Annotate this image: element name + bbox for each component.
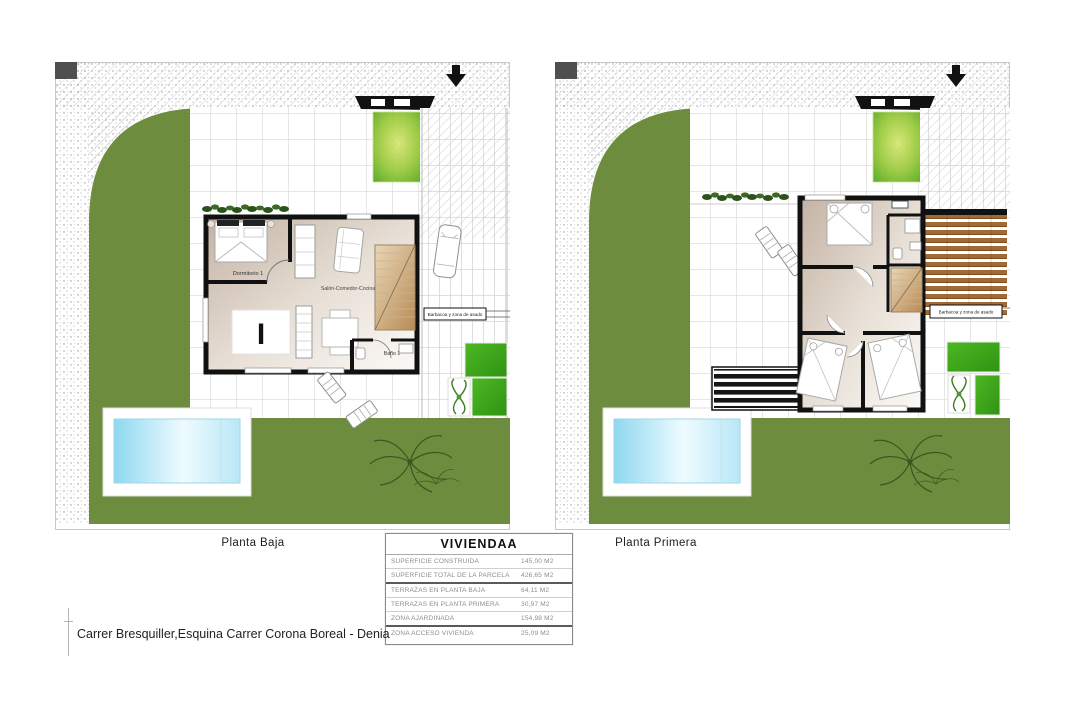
plan-title-planta-baja: Planta Baja	[183, 537, 323, 553]
bedroom-label: Dormitorio 1	[233, 271, 263, 277]
row-label: SUPERFICIE CONSTRUIDA	[391, 558, 479, 565]
grass-patch	[975, 375, 1000, 415]
house-first-floor	[796, 195, 923, 411]
house-ground-floor: I Dormitorio 1 Salón-Comedor-Cocina Baño…	[203, 214, 417, 373]
bbq-label: Barbacoa y zona de asado	[428, 312, 483, 317]
row-label: TERRAZAS EN PLANTA BAJA	[391, 587, 485, 594]
stairs	[375, 245, 415, 330]
row-value: 25,09 M2	[521, 630, 565, 637]
terrace-steps	[712, 367, 800, 410]
grass-patch	[947, 342, 1000, 372]
row-value: 30,97 M2	[521, 601, 565, 608]
bbq-label: Barbacoa y zona de asado	[939, 310, 994, 315]
sofa	[333, 227, 363, 273]
row-label: ZONA ACCESO VIVIENDA	[391, 630, 474, 637]
grass-patch	[465, 343, 507, 377]
table-row: TERRAZAS EN PLANTA PRIMERA 30,97 M2	[386, 598, 572, 612]
row-value: 145,00 M2	[521, 558, 565, 565]
sheet-edge-mark	[64, 621, 73, 622]
grass-patch	[472, 378, 507, 416]
table-title: VIVIENDAA	[386, 534, 572, 555]
living-label: Salón-Comedor-Cocina	[321, 286, 375, 292]
stairs	[891, 268, 922, 312]
row-value: 64,11 M2	[521, 587, 565, 594]
table-row: TERRAZAS EN PLANTA BAJA 64,11 M2	[386, 584, 572, 598]
driveway	[920, 108, 1010, 211]
wood-deck	[922, 209, 1007, 315]
table-row: ZONA ACCESO VIVIENDA 25,09 M2	[386, 627, 572, 644]
row-value: 426,65 M2	[521, 572, 565, 579]
double-bed	[208, 220, 275, 262]
plan-planta-primera: Barbacoa y zona de asado	[555, 62, 1010, 530]
rug-monogram: I	[257, 318, 265, 351]
table-row: ZONA AJARDINADA 154,98 M2	[386, 612, 572, 627]
surface-summary-table: VIVIENDAA SUPERFICIE CONSTRUIDA 145,00 M…	[385, 533, 573, 645]
row-value: 154,98 M2	[521, 615, 565, 622]
sheet-edge-mark	[68, 608, 69, 656]
row-label: SUPERFICIE TOTAL DE LA PARCELA	[391, 572, 510, 579]
bath-label: Baño 1	[384, 351, 401, 357]
plan-planta-baja: I Dormitorio 1 Salón-Comedor-Cocina Baño…	[55, 62, 510, 530]
row-label: TERRAZAS EN PLANTA PRIMERA	[391, 601, 499, 608]
plan-title-planta-primera: Planta Primera	[586, 537, 726, 553]
row-label: ZONA AJARDINADA	[391, 615, 454, 622]
table-row: SUPERFICIE TOTAL DE LA PARCELA 426,65 M2	[386, 569, 572, 584]
bbq-callout: Barbacoa y zona de asado	[930, 305, 1010, 318]
double-bed	[827, 203, 872, 245]
table-row: SUPERFICIE CONSTRUIDA 145,00 M2	[386, 555, 572, 569]
project-address: Carrer Bresquiller,Esquina Carrer Corona…	[77, 627, 390, 641]
